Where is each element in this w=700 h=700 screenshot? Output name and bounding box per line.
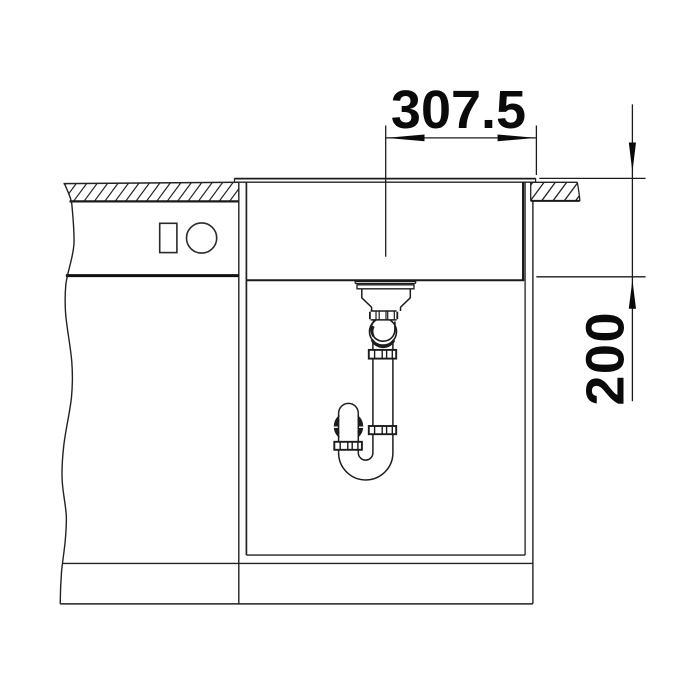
svg-text:307.5: 307.5 bbox=[391, 80, 526, 140]
svg-text:200: 200 bbox=[576, 311, 636, 406]
